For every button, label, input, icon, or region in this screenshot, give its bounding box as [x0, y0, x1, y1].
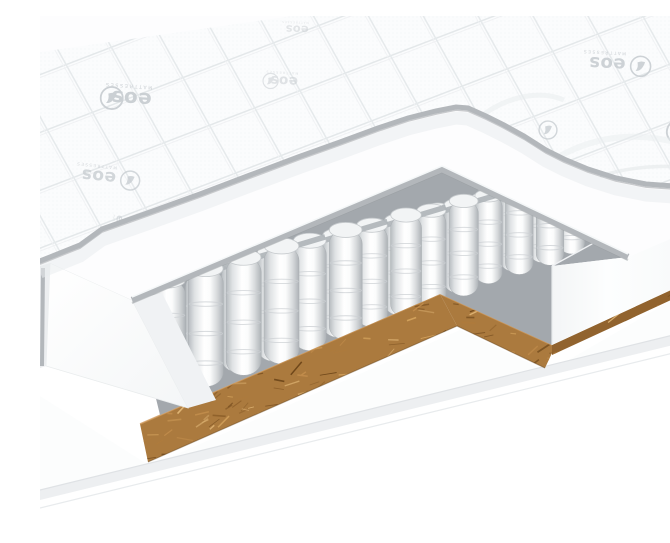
coir-strand	[462, 322, 476, 323]
spring-coil	[449, 194, 478, 296]
coir-strand	[227, 396, 232, 397]
coir-strand	[453, 304, 458, 305]
coir-strand	[363, 338, 370, 339]
spring-coil	[264, 238, 299, 364]
spring-coil	[391, 208, 422, 317]
spring-coil	[226, 249, 261, 375]
coir-strand	[510, 333, 516, 334]
left-strip-trim	[42, 268, 43, 366]
coir-strand	[213, 415, 226, 416]
mattress-cutaway-illustration: eosMATTRESSESeosMATTRESSESeosMATTRESSESe…	[40, 16, 670, 527]
spring-coil	[329, 222, 362, 340]
spring-coil	[475, 189, 503, 283]
